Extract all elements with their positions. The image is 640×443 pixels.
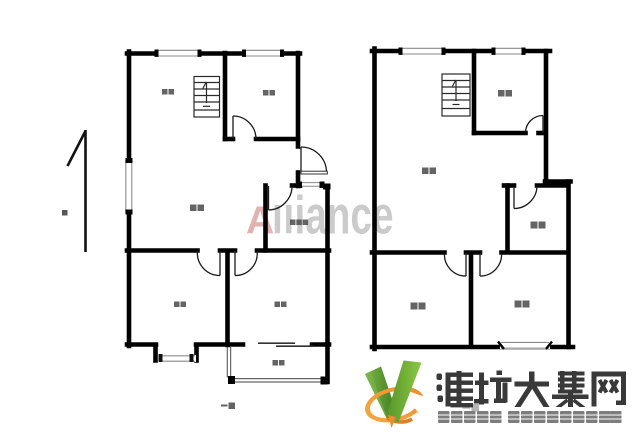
svg-text:iance: iance <box>295 186 394 246</box>
svg-text:A: A <box>246 200 274 243</box>
